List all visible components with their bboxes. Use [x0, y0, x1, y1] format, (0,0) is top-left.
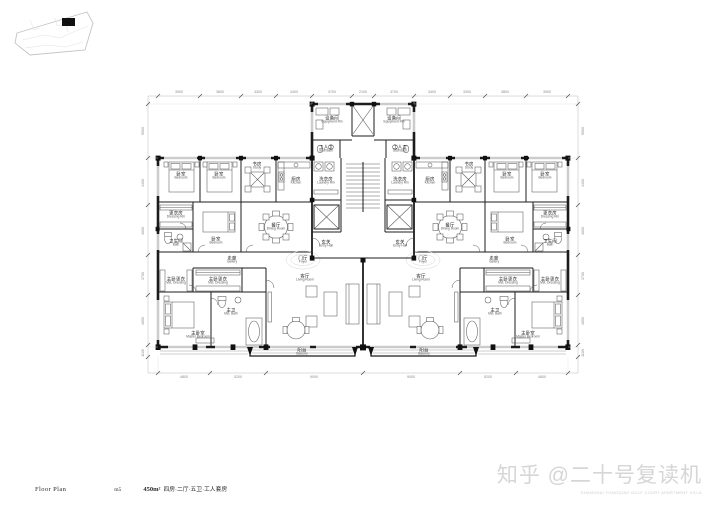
room-label-staff-bath-left: 工人卫Staff Bath: [319, 145, 333, 154]
room-label-dining: 餐厅Dining Room: [267, 223, 285, 232]
dim-left-3: 3700: [141, 272, 145, 280]
room-label-living: 客厅Living Room: [296, 274, 314, 283]
drawing-area: 450m²: [143, 486, 160, 493]
room-label-bedroom-3r: 卧室Bedroom: [504, 237, 517, 246]
dim-bottom-5: 4800: [538, 375, 546, 379]
room-label-dressing: 更衣房Dressing Rm: [167, 211, 185, 220]
dim-bottom-0: 4800: [180, 375, 188, 379]
floor-plan-drawing: [0, 0, 720, 509]
dim-top-0: 3900: [175, 90, 183, 94]
dim-right-4: 4600: [581, 317, 585, 325]
dim-left-5: 1100: [141, 349, 145, 357]
room-label-equipment-left: 设备间Equipment Rm: [321, 116, 342, 125]
title-block: Floor Plan m5 450m² 四房·二厅·五卫·工人套房: [35, 484, 227, 493]
room-label-laundry-right: 洗衣房Laundry Rm: [391, 177, 408, 186]
floor-plan-sheet: 卧室Bedroom 卧室Bedroom 书房Study 厨房Kitchen 更衣…: [0, 0, 720, 509]
room-label-bedroom-2: 卧室Bedroom: [213, 172, 226, 181]
plan-right-unit: [363, 156, 570, 356]
dim-right-5: 1100: [581, 349, 585, 357]
room-label-master-r: 主卧室Master Bedroom: [516, 331, 540, 340]
room-label-kitchen: 厨房Kitchen: [291, 177, 302, 186]
watermark-text: 知乎 @二十号复读机: [497, 459, 702, 489]
dim-top-3: 3400: [290, 90, 298, 94]
drawing-code: m5: [114, 487, 121, 493]
dim-bottom-1: 5200: [234, 375, 242, 379]
room-label-study-r: 书房Study: [464, 162, 473, 171]
room-label-mst-dressing-2r: 主卧更衣Mst. Dressing: [498, 277, 517, 286]
watermark: 知乎 @二十号复读机 SHANGHAI YONGQIAO GOLF COURT …: [497, 459, 702, 495]
dim-bottom-3: 9000: [407, 375, 415, 379]
drawing-spec: 四房·二厅·五卫·工人套房: [163, 484, 227, 493]
room-label-gallery-r: 走廊Gallery: [489, 256, 499, 265]
room-label-bedroom-1: 卧室Bedroom: [175, 172, 188, 181]
room-label-dressing-r: 更衣房Dressing Rm: [541, 211, 559, 220]
dim-left-4: 4600: [141, 317, 145, 325]
dim-top-10: 3900: [543, 90, 551, 94]
watermark-subtext: SHANGHAI YONGQIAO GOLF COURT APARTMENT V…: [497, 490, 702, 495]
plan-left-unit: [156, 156, 363, 356]
room-label-kitchen-r: 厨房Kitchen: [425, 177, 436, 186]
room-label-living-r: 客厅Living Room: [412, 274, 430, 283]
dim-top-4: 3700: [328, 90, 336, 94]
room-label-foyer-r: 门厅Foyer: [418, 256, 427, 265]
dim-left-1: 4400: [141, 179, 145, 187]
room-label-mst-dressing-1r: 主卧更衣Mst. Dressing: [540, 277, 559, 286]
room-label-mst-dressing-1: 主卧更衣Mst. Dressing: [166, 277, 185, 286]
room-label-entry-left: 玄关Entry Hall: [319, 240, 333, 249]
room-label-bath-r: 卫生间Bath: [543, 239, 557, 248]
dim-right-3: 3700: [581, 272, 585, 280]
room-label-equipment-right: 设备间Equipment Rm: [383, 116, 404, 125]
dim-top-6: 3700: [390, 90, 398, 94]
room-label-foyer: 门厅Foyer: [298, 256, 307, 265]
room-label-balcony-r: 阳台Balcony: [418, 348, 429, 357]
room-label-bedroom-1r: 卧室Bedroom: [539, 172, 552, 181]
room-label-bath: 卫生间Bath: [169, 239, 183, 248]
room-label-mst-bath: 主卫Mst. Bath: [224, 308, 237, 317]
room-label-bedroom-2r: 卧室Bedroom: [501, 172, 514, 181]
room-label-staff-bath-right: 工人卫Staff Bath: [393, 145, 407, 154]
dim-top-7: 3400: [428, 90, 436, 94]
dim-right-1: 4400: [581, 179, 585, 187]
dim-top-8: 3300: [463, 90, 471, 94]
room-label-master: 主卧室Master Bedroom: [186, 331, 210, 340]
dim-top-1: 3800: [216, 90, 224, 94]
room-label-mst-dressing-2: 主卧更衣Mst. Dressing: [208, 277, 227, 286]
dim-left-2: 4600: [141, 227, 145, 235]
dim-top-5: 2100: [359, 90, 367, 94]
room-label-laundry-left: 洗衣房Laundry Rm: [317, 177, 334, 186]
room-label-balcony: 阳台Balcony: [296, 348, 307, 357]
drawing-title: Floor Plan: [35, 486, 66, 493]
dim-bottom-4: 5200: [484, 375, 492, 379]
room-label-bedroom-3: 卧室Bedroom: [210, 237, 223, 246]
dim-right-0: 5000: [581, 127, 585, 135]
room-label-gallery: 走廊Gallery: [227, 256, 237, 265]
room-label-study: 书房Study: [252, 162, 261, 171]
room-label-entry-right: 玄关Entry Hall: [393, 240, 407, 249]
dim-right-2: 4600: [581, 227, 585, 235]
room-label-mst-bath-r: 主卫Mst. Bath: [488, 308, 501, 317]
dim-left-0: 5000: [141, 127, 145, 135]
room-label-dining-r: 餐厅Dining Room: [441, 223, 459, 232]
dim-bottom-2: 9000: [310, 375, 318, 379]
dim-top-9: 3800: [501, 90, 509, 94]
dim-top-2: 3300: [254, 90, 262, 94]
key-plan: [15, 12, 93, 55]
